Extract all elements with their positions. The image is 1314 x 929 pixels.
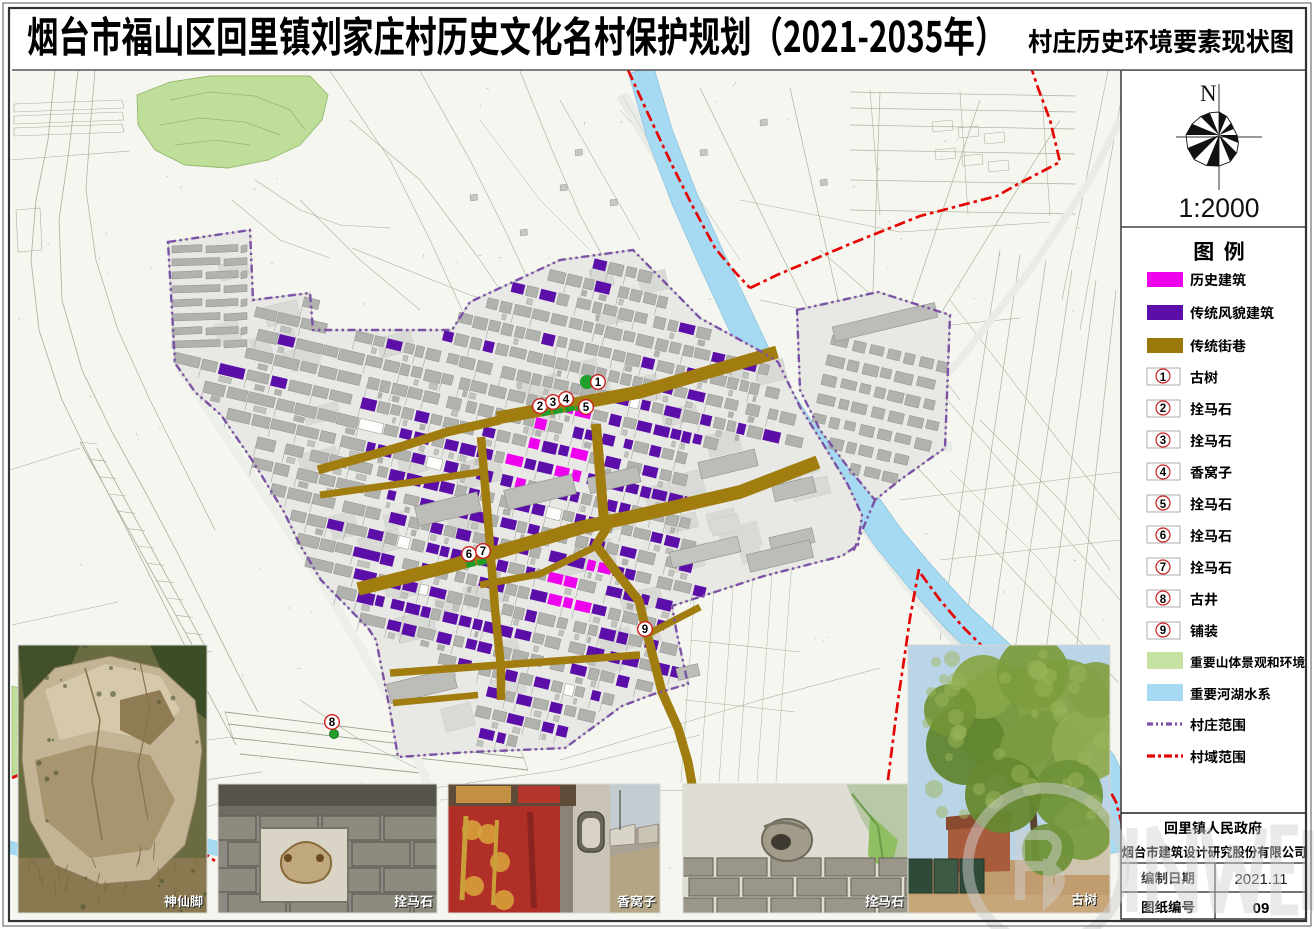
svg-text:5: 5: [583, 402, 590, 414]
svg-text:9: 9: [1160, 625, 1166, 637]
svg-text:6: 6: [1160, 530, 1166, 542]
svg-text:4: 4: [563, 394, 570, 406]
svg-text:1:2000: 1:2000: [1178, 193, 1259, 223]
svg-text:N: N: [1200, 81, 1217, 106]
svg-text:5: 5: [1160, 499, 1167, 511]
svg-text:4: 4: [1160, 467, 1167, 479]
svg-text:8: 8: [329, 717, 336, 729]
svg-text:3: 3: [1160, 435, 1166, 447]
svg-text:6: 6: [466, 549, 472, 561]
svg-text:7: 7: [1160, 562, 1166, 574]
svg-text:9: 9: [642, 624, 648, 636]
svg-text:8: 8: [1160, 594, 1167, 606]
svg-text:1: 1: [595, 377, 602, 389]
svg-text:1: 1: [1160, 372, 1167, 384]
svg-text:7: 7: [480, 546, 486, 558]
svg-text:2: 2: [1160, 403, 1166, 415]
svg-text:2: 2: [537, 401, 543, 413]
svg-text:3: 3: [550, 397, 556, 409]
